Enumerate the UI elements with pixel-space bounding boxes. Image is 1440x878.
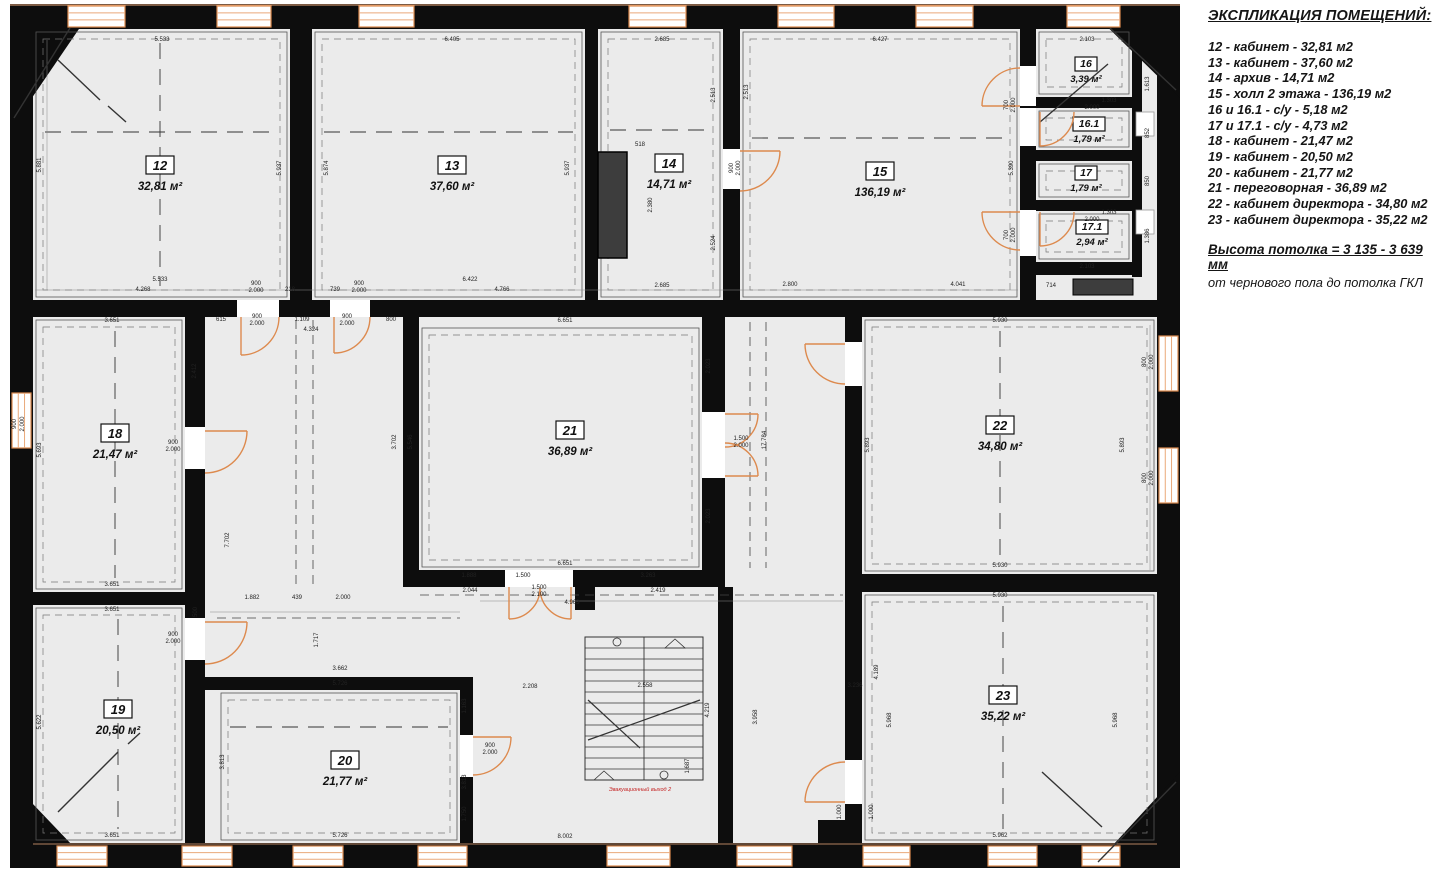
legend-item: 19 - кабинет - 20,50 м2 [1208, 149, 1438, 165]
dimension-label: 5.930 [992, 318, 1008, 324]
legend-item: 22 - кабинет директора - 34,80 м2 [1208, 196, 1438, 212]
dimension-label: 2.000 [1149, 470, 1155, 486]
dimension-label: 700 [1004, 229, 1010, 240]
dimension-label: 739 [330, 287, 341, 293]
room-number: 16 [1080, 58, 1092, 70]
room-area: 20,50 м² [95, 725, 141, 737]
room-number: 21 [562, 423, 577, 438]
dimension-label: 5.622 [37, 714, 43, 730]
dimension-label: 800 [386, 317, 397, 323]
dimension-label: 4.041 [950, 282, 966, 288]
floor-plan-drawing: 1232,81 м²1337,60 м²1414,71 м²15136,19 м… [0, 0, 1185, 878]
dimension-label: 900 [168, 632, 179, 638]
room-area: 35,22 м² [981, 711, 1026, 723]
dimension-label: 5.874 [324, 160, 330, 176]
dimension-label: 1.000 [837, 804, 843, 820]
dimension-label: 8.002 [557, 834, 573, 840]
dimension-label: 3.236 [847, 683, 863, 689]
ceiling-height-note: Высота потолка = 3 135 - 3 639 мм [1208, 242, 1438, 272]
legend-item: 13 - кабинет - 37,60 м2 [1208, 55, 1438, 71]
dimension-label: 3.958 [753, 709, 759, 725]
dimension-label: 2.513 [711, 87, 717, 103]
dimension-label: 700 [1004, 99, 1010, 110]
dimension-label: 5.930 [992, 593, 1008, 599]
dimension-label: 1.882 [244, 595, 260, 601]
evacuation-exit-label: Эвакуационный выход 2 [609, 786, 671, 793]
dimension-label: 4.189 [874, 664, 880, 680]
dimension-label: 6.651 [557, 561, 573, 567]
dimension-label: 2.412 [192, 363, 198, 379]
dimension-label: 1.000 [869, 804, 875, 820]
dimension-label: 6.427 [872, 37, 888, 43]
dimension-label: 2.000 [20, 416, 26, 432]
dimension-label: 6.651 [557, 318, 573, 324]
dimension-label: 1.717 [314, 632, 320, 648]
room-area: 136,19 м² [855, 187, 907, 199]
dimension-label: 4.324 [303, 327, 319, 333]
dimension-label: 3.813 [220, 754, 226, 770]
legend-panel: ЭКСПЛИКАЦИЯ ПОМЕЩЕНИЙ: 12 - кабинет - 32… [1208, 8, 1438, 290]
dimension-label: 2.044 [462, 588, 478, 594]
legend-item: 16 и 16.1 - с/у - 5,18 м2 [1208, 102, 1438, 118]
room-area: 3,39 м² [1070, 74, 1102, 85]
dimension-label: 1.500 [531, 585, 547, 591]
dimension-label: 5.533 [152, 277, 168, 283]
legend-items: 12 - кабинет - 32,81 м213 - кабинет - 37… [1208, 39, 1438, 227]
room-number: 14 [662, 156, 677, 171]
dimension-label: 900 [485, 743, 496, 749]
dimension-label: 900 [354, 281, 365, 287]
dimension-label: 2.524 [711, 235, 717, 251]
dimension-label: 3.651 [104, 607, 120, 613]
room-area: 1,79 м² [1073, 134, 1105, 145]
room-number: 23 [995, 688, 1011, 703]
dimension-label: 5.937 [277, 160, 283, 176]
dimension-label: 5.533 [154, 37, 170, 43]
dimension-label: 2.685 [654, 283, 670, 289]
dimension-label: 4.268 [135, 287, 151, 293]
legend-item: 23 - кабинет директора - 35,22 м2 [1208, 212, 1438, 228]
dimension-label: 2.000 [249, 321, 265, 327]
legend-item: 12 - кабинет - 32,81 м2 [1208, 39, 1438, 55]
dimension-label: 4.766 [494, 287, 510, 293]
dimension-label: 5.968 [1113, 712, 1119, 728]
dimension-label: 3.702 [392, 434, 398, 450]
dimension-label: 2.100 [531, 592, 547, 598]
dimension-label: 2.000 [248, 288, 264, 294]
dimension-label: 6.405 [444, 37, 460, 43]
dimension-label: 714 [1046, 283, 1057, 289]
dimension-label: 2.208 [522, 684, 538, 690]
dimension-label: 5.930 [992, 563, 1008, 569]
legend-item: 15 - холл 2 этажа - 136,19 м2 [1208, 86, 1438, 102]
dimension-label: 2.000 [1011, 227, 1017, 243]
room-area: 32,81 м² [138, 181, 183, 193]
dimension-label: 2.000 [733, 443, 749, 449]
dimension-label: 900 [251, 281, 262, 287]
room-area: 21,77 м² [322, 776, 368, 788]
legend-title: ЭКСПЛИКАЦИЯ ПОМЕЩЕНИЙ: [1208, 8, 1438, 24]
dimension-label: 1.500 [733, 436, 749, 442]
room-area: 37,60 м² [430, 181, 475, 193]
dimension-label: 2.000 [335, 595, 351, 601]
floor-plan-page: 1232,81 м²1337,60 м²1414,71 м²15136,19 м… [0, 0, 1440, 878]
dimension-label: 850 [1145, 175, 1151, 186]
dimension-label: 2.000 [482, 750, 498, 756]
room-area: 2,94 м² [1075, 237, 1108, 248]
ceiling-height-subnote: от чернового пола до потолка ГКЛ [1208, 275, 1438, 290]
dimension-label: 1.386 [1145, 228, 1151, 244]
room-number: 13 [445, 158, 460, 173]
dimension-label: 615 [216, 317, 227, 323]
dimension-label: 17.784 [762, 430, 768, 449]
dimension-label: 2.800 [782, 282, 798, 288]
dimension-label: 5.962 [992, 833, 1008, 839]
dimension-label: 1.303 [1101, 210, 1117, 216]
dimension-label: 1.687 [685, 758, 691, 774]
room-number: 17 [1080, 167, 1093, 179]
room-area: 34,80 м² [978, 441, 1023, 453]
dimension-label: 900 [729, 162, 735, 173]
dimension-label: 3.651 [104, 833, 120, 839]
dimension-label: 900 [12, 418, 18, 429]
room-area: 36,89 м² [548, 446, 593, 458]
legend-item: 21 - переговорная - 36,89 м2 [1208, 180, 1438, 196]
dimension-label: 900 [252, 314, 263, 320]
duct [1073, 279, 1133, 295]
dimension-label: 5.893 [1120, 437, 1126, 453]
dimension-label: 1.500 [515, 573, 531, 579]
dimension-label: 2.380 [648, 197, 654, 213]
dimension-label: 5.693 [37, 442, 43, 458]
room-area: 1,79 м² [1070, 183, 1102, 194]
dimension-label: 4.963 [564, 600, 580, 606]
dimension-label: 1.109 [294, 317, 310, 323]
dimension-label: 800 [1142, 472, 1148, 483]
dimension-label: 2.000 [1084, 105, 1100, 111]
dimension-label: 2.000 [339, 321, 355, 327]
dimension-label: 852 [1145, 127, 1151, 138]
room-area: 21,47 м² [92, 449, 138, 461]
dimension-label: 218 [285, 287, 296, 293]
dimension-label: 5.726 [332, 681, 348, 687]
dimension-label: 4.219 [705, 702, 711, 718]
dimension-label: 2.513 [744, 84, 750, 100]
legend-item: 14 - архив - 14,71 м2 [1208, 70, 1438, 86]
dimension-label: 1.750 [462, 806, 468, 822]
dimension-label: 5.893 [865, 437, 871, 453]
dimension-label: 900 [342, 314, 353, 320]
dimension-label: 500 [193, 606, 199, 617]
dimension-label: 3.662 [332, 666, 348, 672]
dimension-label: 5.881 [37, 157, 43, 173]
dimension-label: 2.000 [1011, 97, 1017, 113]
dimension-label: 1.303 [1101, 98, 1117, 104]
dimension-label: 439 [292, 595, 303, 601]
dimension-label: 2.000 [351, 288, 367, 294]
dimension-label: 800 [1142, 356, 1148, 367]
dimension-label: 2.103 [1079, 264, 1095, 270]
dimension-label: 518 [635, 142, 646, 148]
dimension-label: 3.813 [462, 774, 468, 790]
dimension-label: 2.000 [1149, 354, 1155, 370]
dimension-label: 5.726 [332, 833, 348, 839]
legend-item: 20 - кабинет - 21,77 м2 [1208, 165, 1438, 181]
dimension-label: 1.613 [1145, 76, 1151, 92]
dimension-label: 2.000 [165, 639, 181, 645]
dimension-label: 2.000 [736, 160, 742, 176]
dimension-label: 5.968 [887, 712, 893, 728]
dimension-label: 2.558 [637, 683, 653, 689]
dimension-label: 1.163 [462, 698, 468, 714]
dimension-label: 3.263 [640, 573, 656, 579]
dimension-label: 3.651 [104, 582, 120, 588]
room-number: 20 [337, 753, 353, 768]
dimension-label: 2.023 [706, 508, 712, 524]
dimension-label: 6.422 [462, 277, 478, 283]
room-number: 22 [992, 418, 1008, 433]
dimension-label: 900 [168, 440, 179, 446]
dimension-label: 2.419 [650, 588, 666, 594]
dimension-label: 2.103 [1079, 37, 1095, 43]
dimension-label: 1.888 [461, 573, 477, 579]
legend-item: 18 - кабинет - 21,47 м2 [1208, 133, 1438, 149]
dimension-label: 5.546 [408, 434, 414, 450]
dimension-label: 5.390 [1009, 160, 1015, 176]
dimension-label: 2.023 [706, 358, 712, 374]
dimension-label: 5.937 [565, 160, 571, 176]
legend-item: 17 и 17.1 - с/у - 4,73 м2 [1208, 118, 1438, 134]
dimension-label: 2.000 [1084, 217, 1100, 223]
room-number: 16.1 [1079, 118, 1100, 130]
room-area: 14,71 м² [647, 179, 692, 191]
room-number: 18 [108, 426, 123, 441]
room-number: 19 [111, 702, 126, 717]
shaft [598, 152, 627, 258]
dimension-label: 7.702 [225, 532, 231, 548]
dimension-label: 2.685 [654, 37, 670, 43]
dimension-label: 3.651 [104, 318, 120, 324]
dimension-label: 2.000 [165, 447, 181, 453]
room-number: 15 [873, 164, 888, 179]
room-number: 12 [153, 158, 168, 173]
